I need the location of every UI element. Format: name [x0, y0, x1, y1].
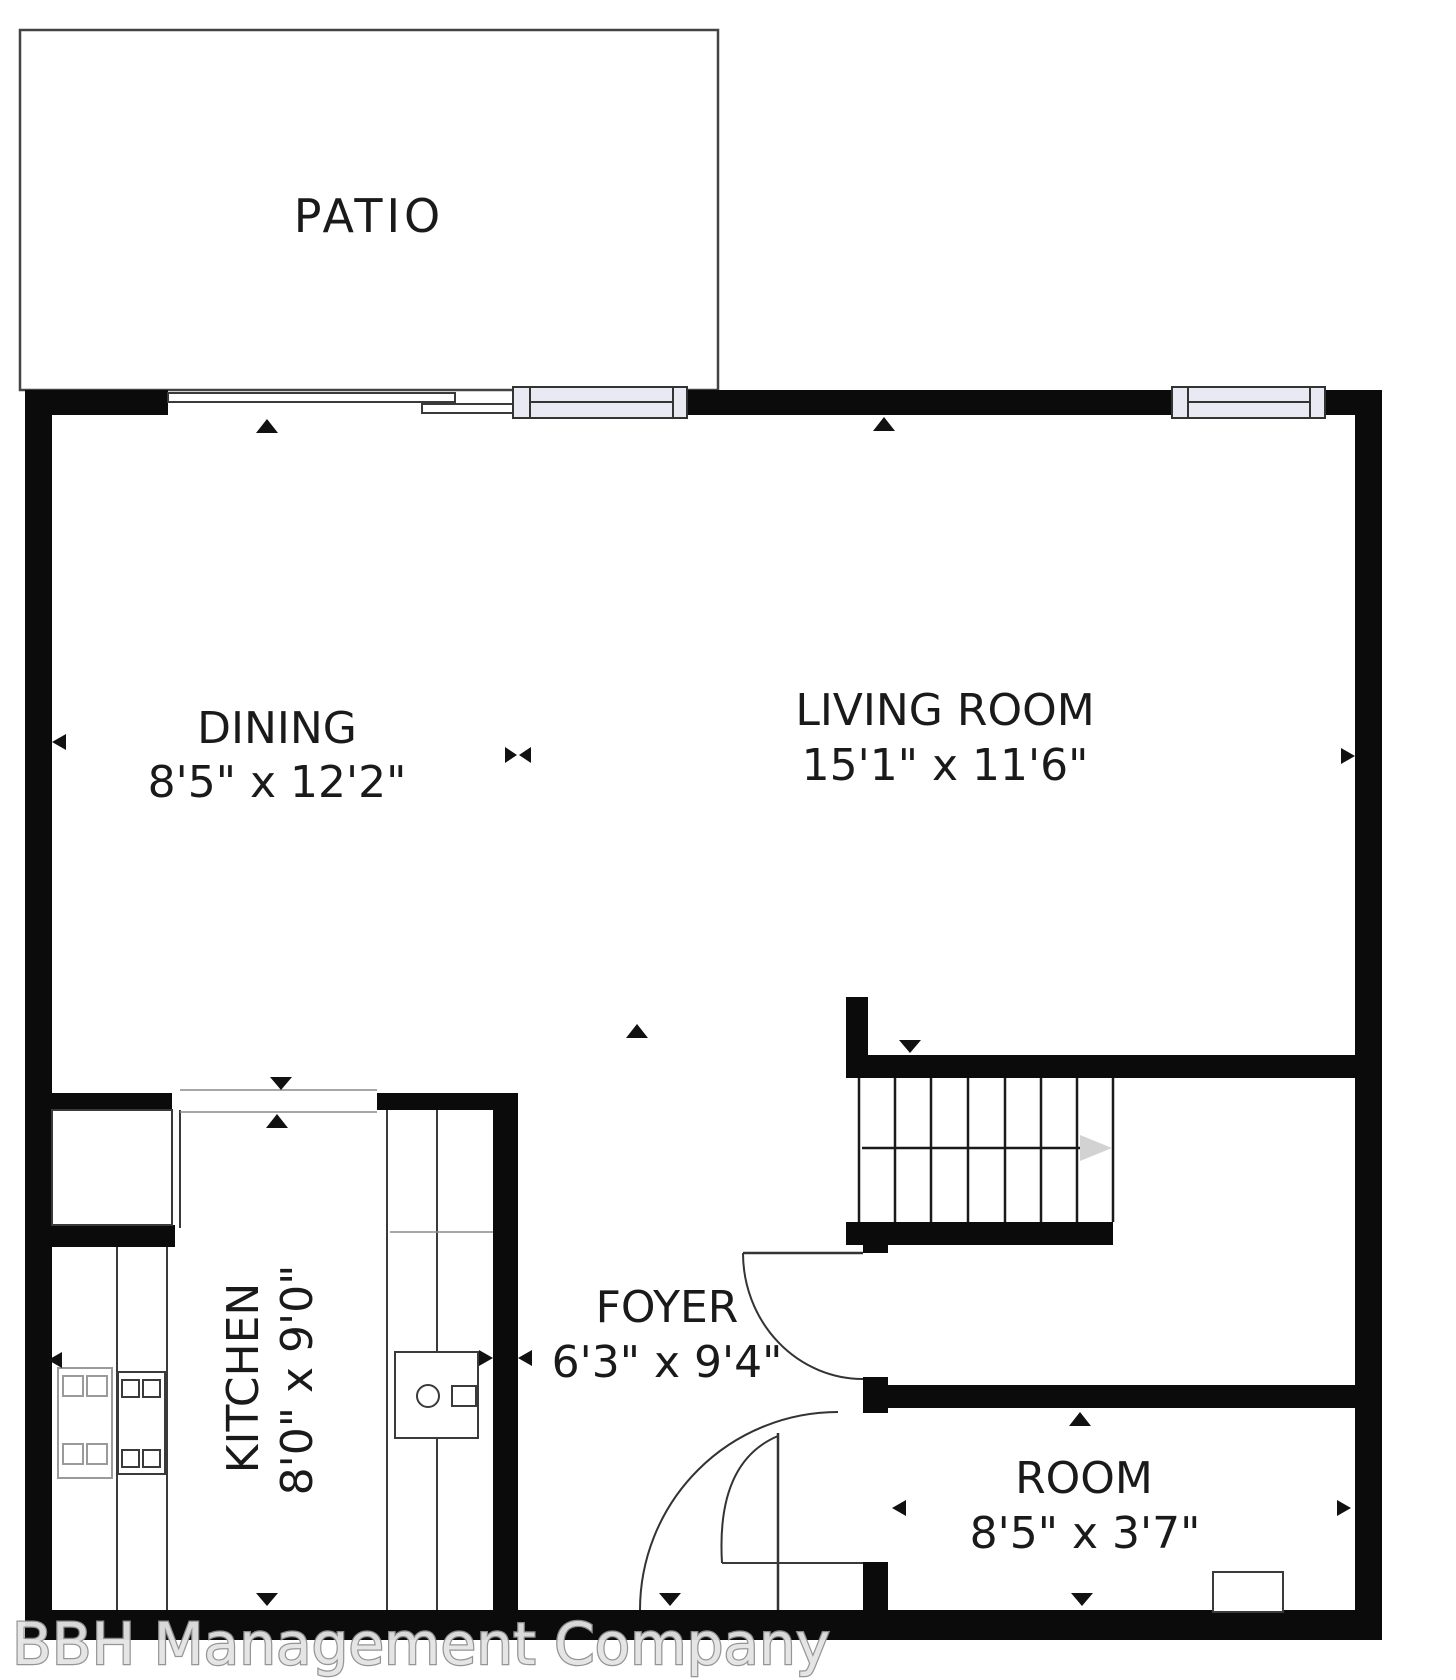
- burner: [122, 1380, 139, 1397]
- sliding-door: [168, 393, 513, 413]
- marker-down-icon: [270, 1077, 292, 1090]
- left-exterior-wall: [25, 390, 52, 1640]
- burner: [87, 1444, 107, 1464]
- burner: [63, 1444, 83, 1464]
- kitchen-foyer-divider-wall: [493, 1110, 518, 1610]
- marker-down-icon: [256, 1593, 278, 1606]
- foyer-dimensions: 6'3" x 9'4": [552, 1337, 783, 1388]
- kitchen-top-right-wall: [377, 1093, 518, 1110]
- kitchen-closet-top-wall: [52, 1093, 172, 1110]
- foyer-right-wall-lower: [863, 1562, 888, 1610]
- sliding-door-panel-right: [422, 404, 513, 413]
- dining-dimensions: 8'5" x 12'2": [148, 757, 407, 808]
- sliding-door-panel-left: [168, 393, 455, 402]
- burner: [122, 1450, 139, 1467]
- marker-up-icon: [256, 419, 278, 433]
- marker-right-icon: [1337, 1500, 1351, 1516]
- room-door-swing-arc: [640, 1412, 838, 1610]
- room-top-wall: [863, 1385, 1355, 1408]
- closet-door-swing-arc: [721, 1436, 778, 1563]
- living-room-dimensions: 15'1" x 11'6": [802, 740, 1089, 791]
- marker-right-icon: [1341, 748, 1355, 764]
- burner: [87, 1376, 107, 1396]
- floorplan-canvas: PATIO DINING 8'5" x 12'2" LIVING ROOM 15…: [0, 0, 1456, 1680]
- marker-left-icon: [52, 734, 66, 750]
- top-wall-middle-segment: [687, 390, 1172, 415]
- burner: [143, 1380, 160, 1397]
- kitchen-closet-bottom-wall: [52, 1225, 175, 1247]
- sink-icon: [395, 1352, 478, 1438]
- marker-left-icon: [519, 747, 531, 763]
- dining-label: DINING: [197, 703, 357, 754]
- marker-left-icon: [518, 1350, 532, 1366]
- staircase: [859, 1078, 1113, 1222]
- kitchen-closet-box: [52, 1110, 172, 1225]
- marker-left-icon: [892, 1500, 906, 1516]
- marker-up-icon: [873, 417, 895, 431]
- foyer-right-wall-upper: [863, 1222, 888, 1253]
- room-dimensions: 8'5" x 3'7": [970, 1508, 1201, 1559]
- room-niche: [1213, 1572, 1283, 1612]
- marker-up-icon: [266, 1114, 288, 1128]
- foyer-label: FOYER: [596, 1282, 739, 1333]
- stairs-top-wall: [846, 1055, 1382, 1078]
- marker-down-icon: [1071, 1593, 1093, 1606]
- stove-icon: [58, 1368, 165, 1478]
- burner: [63, 1376, 83, 1396]
- marker-down-icon: [659, 1593, 681, 1606]
- marker-up-icon: [1069, 1412, 1091, 1426]
- sink-drain: [417, 1385, 439, 1407]
- marker-down-icon: [899, 1040, 921, 1053]
- patio-label: PATIO: [294, 189, 445, 243]
- right-exterior-wall: [1355, 390, 1382, 1640]
- stair-direction-arrow-icon: [1080, 1135, 1112, 1161]
- watermark-text: BBH Management Company: [12, 1610, 830, 1678]
- marker-up-icon: [626, 1024, 648, 1038]
- marker-right-icon: [505, 747, 517, 763]
- living-room-label: LIVING ROOM: [795, 685, 1094, 736]
- room-label: ROOM: [1015, 1453, 1153, 1504]
- kitchen-label: KITCHEN: [218, 1283, 269, 1474]
- burner: [143, 1450, 160, 1467]
- sink-faucet: [452, 1386, 476, 1406]
- kitchen-dimensions: 8'0" x 9'0": [272, 1265, 323, 1496]
- marker-right-icon: [479, 1350, 493, 1366]
